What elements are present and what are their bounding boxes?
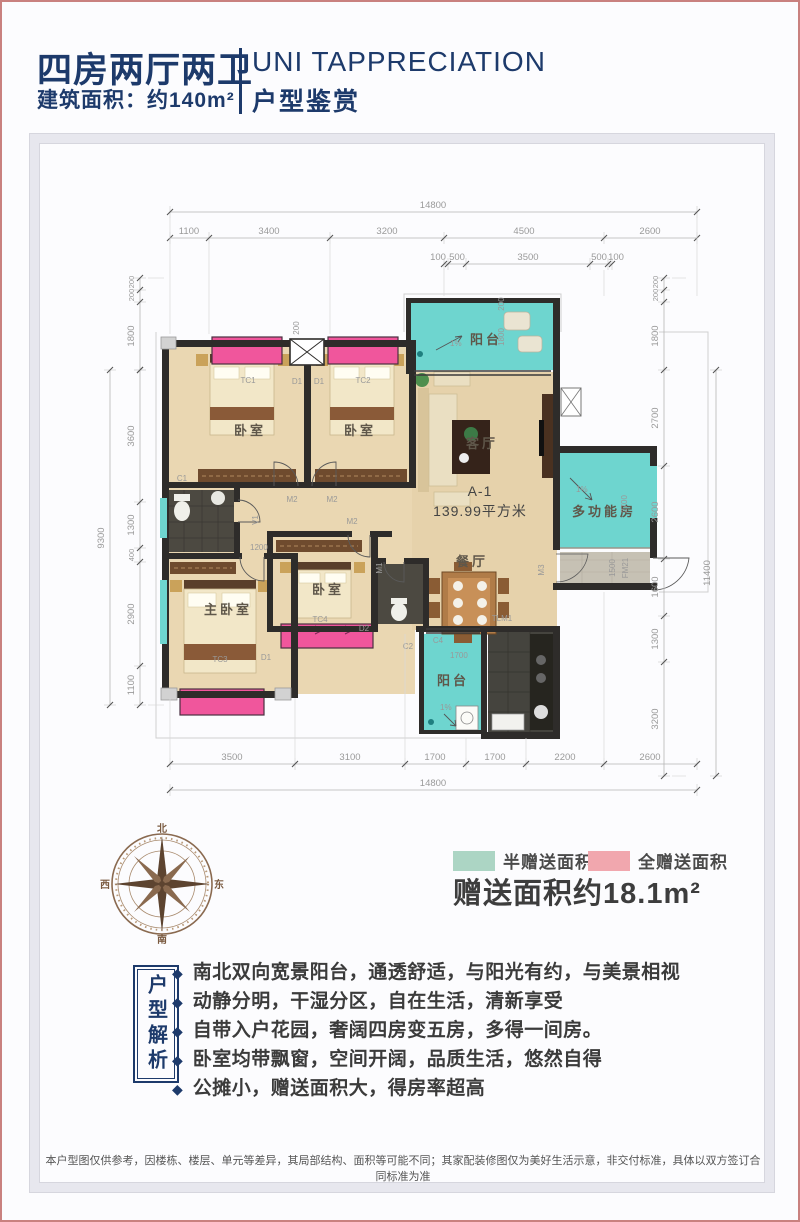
room-label-master: 主卧室 [204, 602, 252, 617]
list-item: ◆ 卧室均带飘窗，空间开阔，品质生活，悠然自得 [172, 1049, 727, 1071]
inner-dim: 1500 [608, 559, 617, 577]
dim-label: 1100 [126, 675, 137, 695]
door-tag: TLM1 [492, 614, 513, 623]
page-title-en: UNI TAPPRECIATION [252, 46, 546, 78]
dim-label: 3200 [376, 226, 397, 237]
dim-label: 2900 [126, 603, 137, 624]
dim-label: 14800 [420, 778, 446, 789]
door-tag: V1 [251, 515, 260, 525]
dim-label: 1800 [650, 325, 661, 346]
compass-rose: 北 南 西 东 [100, 822, 224, 946]
diamond-bullet-icon: ◆ [172, 991, 183, 1013]
dim-label: 2200 [554, 752, 575, 763]
dim-label: 14800 [420, 200, 446, 211]
door-tag: FM21 [621, 557, 630, 578]
dim-label: 3600 [126, 425, 137, 446]
bullet-text: 公摊小，赠送面积大，得房率超高 [193, 1078, 486, 1100]
inner-dim: 1800 [497, 328, 506, 346]
list-item: ◆ 公摊小，赠送面积大，得房率超高 [172, 1078, 727, 1100]
slope-label: 1% [440, 703, 452, 712]
compass-star [114, 836, 210, 932]
diamond-bullet-icon: ◆ [172, 1078, 183, 1100]
dim-label: 3400 [258, 226, 279, 237]
dim-label: 2600 [650, 501, 661, 522]
list-item: ◆ 动静分明，干湿分区，自在生活，清新享受 [172, 991, 727, 1013]
slope-label: 1% [450, 339, 462, 348]
room-label-living: 客厅 [466, 436, 498, 451]
inner-dim: 200 [292, 321, 301, 335]
bay-tag: TC2 [355, 376, 371, 385]
dim-label: 3100 [339, 752, 360, 763]
dim-label: 1100 [179, 226, 199, 237]
room-label-balcony-bottom: 阳台 [437, 673, 469, 688]
dim-label: 500 [449, 252, 465, 263]
door-tag: D2 [359, 624, 370, 633]
room-label-dining: 餐厅 [455, 554, 488, 569]
dim-label: 200 [127, 289, 136, 302]
window-tag: C4 [433, 636, 444, 645]
disclaimer-text: 本户型图仅供参考，因楼栋、楼层、单元等差异，其局部结构、面积等可能不同；其家配装… [42, 1152, 764, 1184]
bay-tag: TC3 [212, 655, 228, 664]
dim-label: 11400 [702, 560, 713, 586]
compass-west-label: 西 [100, 879, 110, 891]
analysis-title: 户型解析 [137, 969, 175, 1079]
page-subtitle: 户型鉴赏 [252, 82, 360, 118]
list-item: ◆ 自带入户花园，奢阔四房变五房，多得一间房。 [172, 1020, 727, 1042]
flue-shaft [290, 339, 324, 365]
dim-label: 1600 [650, 576, 661, 597]
bullet-text: 卧室均带飘窗，空间开阔，品质生活，悠然自得 [193, 1049, 603, 1071]
door-tag: M1 [375, 562, 384, 574]
door-tag: M2 [286, 495, 298, 504]
dim-label: 3500 [517, 252, 538, 263]
dim-label: 500 [591, 252, 607, 263]
door-tag: D1 [261, 653, 272, 662]
dim-label: 200 [651, 276, 660, 289]
full-gift-swatch [588, 851, 630, 871]
dim-label: 1700 [484, 752, 505, 763]
room-label-bedroom1: 卧室 [234, 423, 266, 438]
slope-label: 1% [576, 485, 588, 494]
dim-label: 1700 [424, 752, 445, 763]
dim-label: 200 [651, 289, 660, 302]
unit-label: A-1 [468, 483, 493, 499]
floor-plan: 14800 1100 3400 3200 4500 2600 100 500 3… [52, 182, 752, 827]
dim-label: 1300 [126, 514, 137, 535]
bay-tag: TC4 [312, 615, 328, 624]
compass-south-label: 南 [157, 933, 167, 946]
dim-label: 400 [127, 549, 136, 562]
bullet-text: 南北双向宽景阳台，通透舒适，与阳光有约，与美景相视 [193, 962, 681, 984]
dim-label: 100 [430, 252, 446, 263]
dim-label: 200 [127, 276, 136, 289]
door-tag: M2 [346, 517, 358, 526]
dim-label: 2600 [639, 226, 660, 237]
dim-label: 3500 [221, 752, 242, 763]
room-label-bedroom2: 卧室 [344, 423, 376, 438]
inner-dim: 200 [497, 297, 506, 311]
dim-label: 3200 [650, 708, 661, 729]
dim-label: 1300 [650, 628, 661, 649]
unit-area-label: 139.99平方米 [433, 503, 527, 519]
door-tag: D1 [314, 377, 325, 386]
diamond-bullet-icon: ◆ [172, 1020, 183, 1042]
diamond-bullet-icon: ◆ [172, 1049, 183, 1071]
window-tag: C2 [403, 642, 414, 651]
bay-tag: TC1 [240, 376, 256, 385]
inner-dim: 1200 [250, 543, 268, 552]
bonus-area-text: 赠送面积约18.1m² [453, 870, 701, 912]
analysis-bullets: ◆ 南北双向宽景阳台，通透舒适，与阳光有约，与美景相视 ◆ 动静分明，干湿分区，… [172, 962, 727, 1107]
bullet-text: 动静分明，干湿分区，自在生活，清新享受 [193, 991, 564, 1013]
window-tag: C1 [177, 474, 188, 483]
inner-dim: 2700 [620, 495, 629, 513]
compass-east-label: 东 [214, 878, 224, 891]
bullet-text: 自带入户花园，奢阔四房变五房，多得一间房。 [193, 1020, 603, 1042]
dim-label: 9300 [96, 527, 107, 548]
header-divider [239, 48, 242, 114]
dim-label: 2600 [639, 752, 660, 763]
dim-label: 4500 [513, 226, 534, 237]
list-item: ◆ 南北双向宽景阳台，通透舒适，与阳光有约，与美景相视 [172, 962, 727, 984]
door-tag: M2 [326, 495, 338, 504]
inner-dim: 1700 [450, 651, 468, 660]
compass-north-label: 北 [157, 822, 167, 835]
half-gift-swatch [453, 851, 495, 871]
lot-outline-right [659, 332, 708, 592]
elevator-shaft [561, 388, 581, 416]
room-label-bedroom3: 卧室 [312, 582, 344, 597]
poster-page: 四房两厅两卫 建筑面积：约140m² UNI TAPPRECIATION 户型鉴… [0, 0, 800, 1222]
building-area-line: 建筑面积：约140m² [37, 84, 235, 114]
dim-label: 2700 [650, 407, 661, 428]
door-tag: D1 [292, 377, 303, 386]
dim-label: 1800 [126, 325, 137, 346]
door-tag: M3 [537, 564, 546, 576]
diamond-bullet-icon: ◆ [172, 962, 183, 984]
